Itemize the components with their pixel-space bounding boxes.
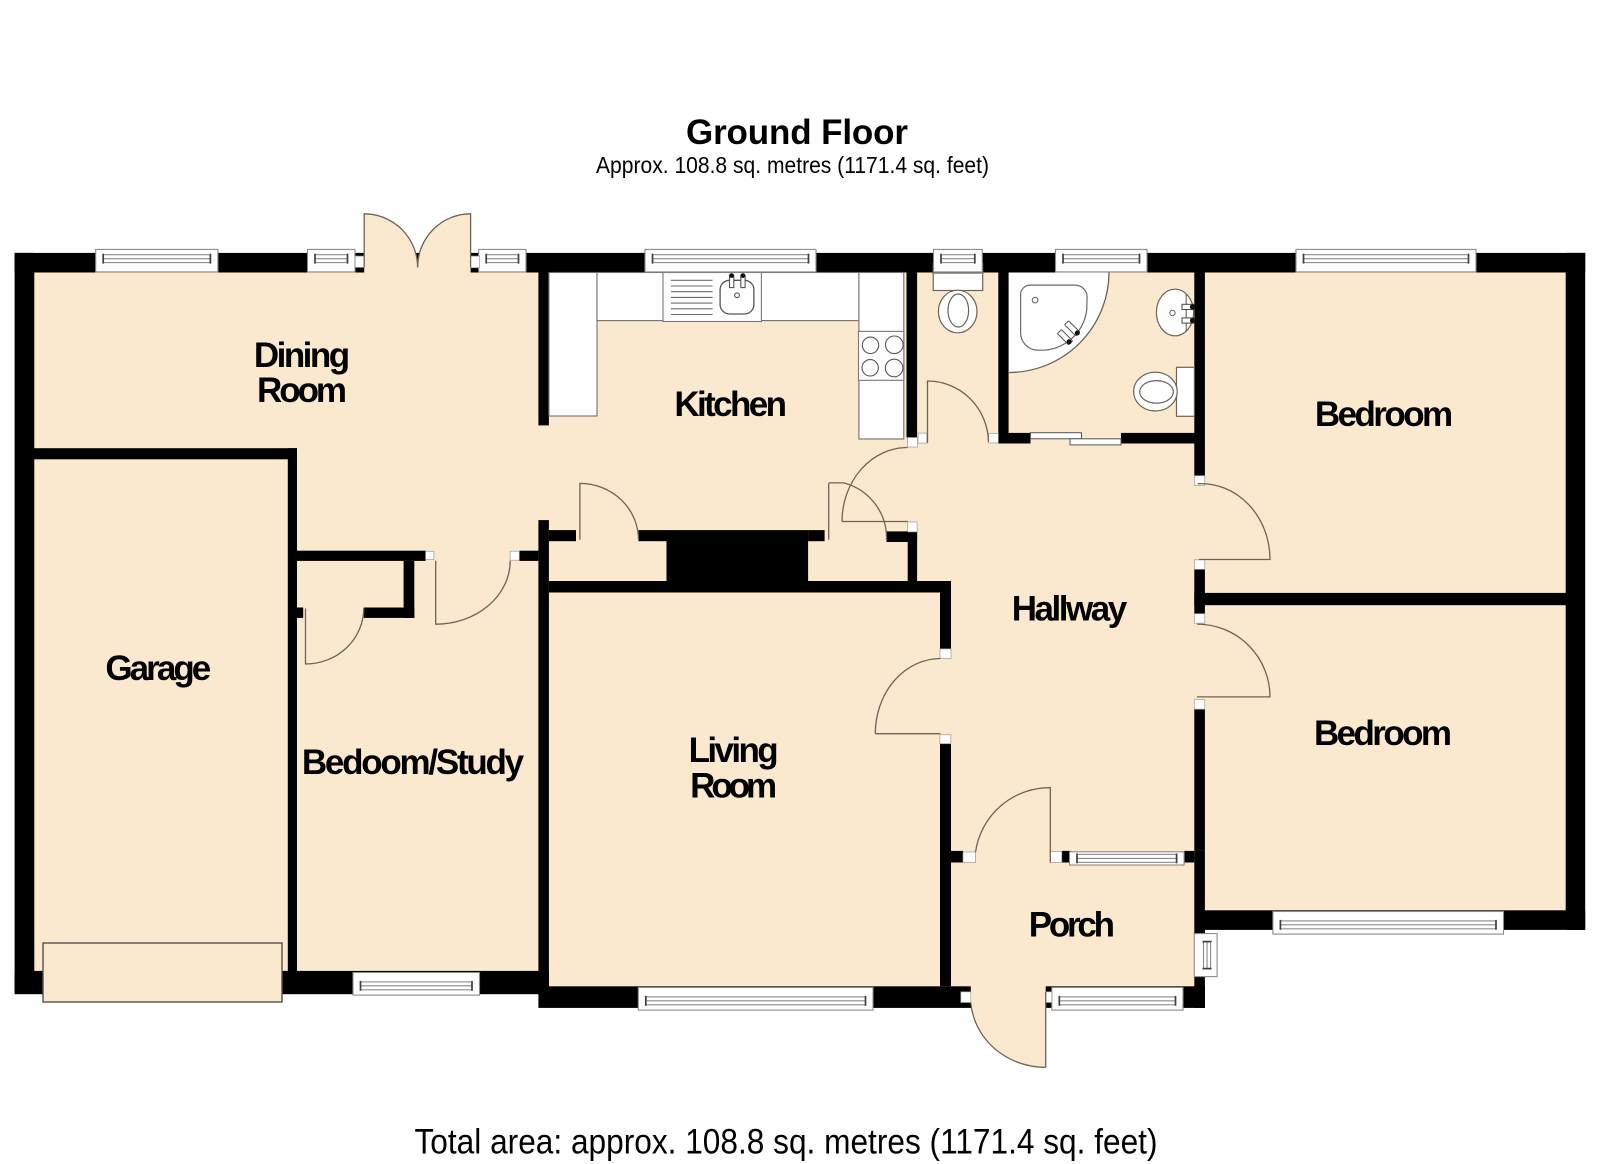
svg-text:Dining: Dining	[254, 336, 350, 375]
svg-text:Hallway: Hallway	[1012, 589, 1128, 628]
svg-text:Garage: Garage	[105, 649, 211, 688]
svg-text:Room: Room	[257, 371, 347, 410]
svg-text:Ground Floor: Ground Floor	[686, 113, 908, 152]
svg-text:Bedroom: Bedroom	[1315, 395, 1453, 434]
svg-text:Room: Room	[690, 766, 777, 805]
svg-text:Kitchen: Kitchen	[674, 385, 787, 424]
svg-text:Porch: Porch	[1029, 905, 1115, 944]
svg-text:Bedroom: Bedroom	[1314, 714, 1452, 753]
svg-text:Total area: approx. 108.8 sq.: Total area: approx. 108.8 sq. metres (11…	[415, 1122, 1158, 1162]
svg-text:Living: Living	[689, 731, 779, 770]
svg-text:Bedoom/Study: Bedoom/Study	[302, 743, 525, 782]
svg-text:Approx. 108.8 sq. metres (1171: Approx. 108.8 sq. metres (1171.4 sq. fee…	[596, 152, 989, 178]
